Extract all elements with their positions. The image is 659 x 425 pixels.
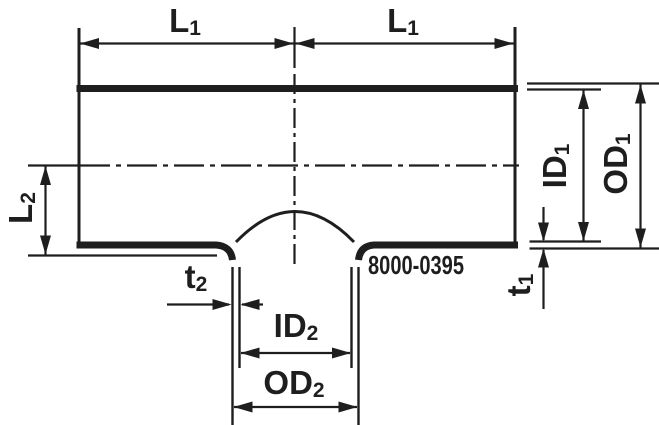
l1-center-left-arrowhead [275,38,294,49]
id2-left-arrowhead [241,348,260,359]
od1-top-arrowhead [635,85,646,104]
id1-bottom-arrowhead [578,222,589,241]
body-bottom-wall-left-line [77,245,233,260]
centerlines [80,27,519,264]
tee-body-outline [77,27,519,260]
t1-label: t1 [500,273,538,296]
l2-top-arrowhead [40,166,51,185]
l1-left-label: L1 [169,2,201,40]
t2-label: t2 [185,258,208,296]
od1-bottom-arrowhead [635,229,646,248]
dimension-l1: L1 L1 [80,2,514,49]
t2-left-pointing-arrowhead [241,299,260,310]
id1-label: ID1 [536,143,574,188]
l1-left-arrowhead [80,38,99,49]
tee-fitting-dimension-diagram: L1 L1 L2 ID1 OD1 [0,0,659,425]
l1-center-right-arrowhead [296,38,315,49]
id2-right-arrowhead [332,348,351,359]
od2-left-arrowhead [234,402,253,413]
id1-top-arrowhead [578,90,589,109]
part-number-label: 8000-0395 [368,250,464,280]
dimension-od2: OD2 [234,364,358,413]
t1-up-arrowhead [538,249,549,268]
l2-bottom-arrowhead [40,236,51,255]
dimension-t1: t1 [500,207,549,309]
dimension-id2: ID2 [241,307,352,359]
l2-label: L2 [2,192,40,224]
l1-right-label: L1 [387,2,419,40]
l1-right-arrowhead [495,38,514,49]
id2-label: ID2 [274,307,319,345]
od2-label: OD2 [263,364,324,402]
od1-label: OD1 [597,133,635,195]
t2-right-pointing-arrowhead [213,299,232,310]
t1-down-arrowhead [538,223,549,242]
diagram-canvas: L1 L1 L2 ID1 OD1 [0,0,659,425]
od2-right-arrowhead [339,402,358,413]
dimension-t2: t2 [167,258,263,310]
branch-outlet-walls [233,267,359,425]
